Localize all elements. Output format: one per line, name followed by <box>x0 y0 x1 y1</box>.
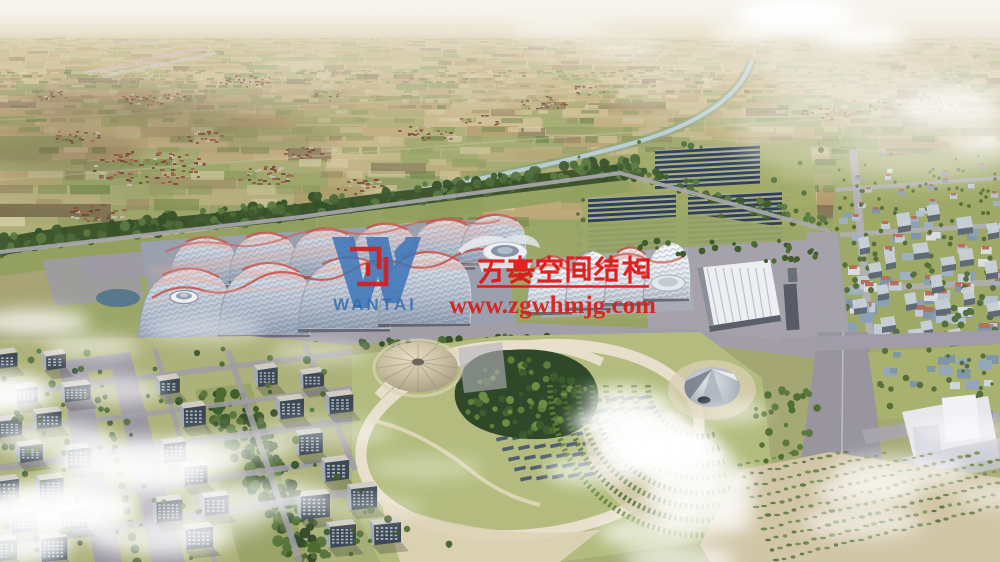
svg-text:WANTAI: WANTAI <box>333 295 417 314</box>
svg-text:www.zgwhmjg.com: www.zgwhmjg.com <box>449 292 656 319</box>
